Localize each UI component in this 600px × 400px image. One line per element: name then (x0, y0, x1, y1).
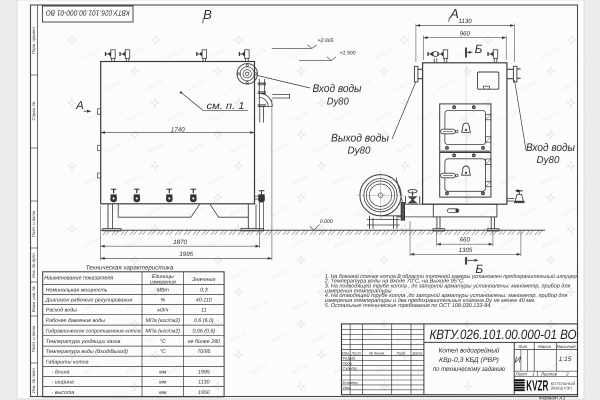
svg-text:960: 960 (460, 30, 471, 37)
svg-text:Дата: Дата (412, 352, 423, 356)
svg-text:Dy80: Dy80 (348, 146, 371, 157)
svg-text:Б: Б (475, 42, 483, 56)
svg-text:Котел водогрейный: Котел водогрейный (439, 346, 500, 354)
svg-text:не более 280: не более 280 (188, 339, 220, 345)
svg-text:КВр-0,3 КБД (РВР): КВр-0,3 КБД (РВР) (439, 357, 499, 364)
svg-text:660: 660 (460, 237, 471, 244)
svg-text:Инв. № подл.: Инв. № подл. (31, 367, 36, 393)
svg-text:1:15: 1:15 (559, 356, 572, 363)
svg-text:11: 11 (201, 308, 207, 314)
svg-text:измерения: измерения (150, 279, 176, 285)
svg-text:0,3: 0,3 (200, 287, 207, 293)
svg-text:Разраб.: Разраб. (343, 357, 356, 361)
svg-text:см. п. 1: см. п. 1 (207, 101, 245, 112)
svg-text:+1.900: +1.900 (340, 51, 356, 57)
svg-text:1740: 1740 (171, 126, 185, 133)
svg-text:Наименование показателя: Наименование показателя (44, 276, 113, 282)
svg-text:Выход воды: Выход воды (331, 133, 389, 145)
svg-text:Лист: Лист (351, 352, 362, 356)
svg-text:А: А (75, 100, 84, 112)
svg-text:40-110: 40-110 (196, 298, 212, 304)
svg-text:МВт: МВт (157, 287, 170, 293)
svg-text:0.000: 0.000 (320, 219, 333, 225)
svg-text:1995: 1995 (179, 251, 193, 258)
svg-text:по техническому заданию: по техническому заданию (433, 366, 505, 373)
svg-text:0,06 (0,6): 0,06 (0,6) (193, 328, 216, 334)
svg-text:- высота: - высота (52, 390, 75, 396)
svg-text:70/95: 70/95 (197, 349, 210, 355)
svg-text:м3/ч: м3/ч (157, 308, 168, 314)
svg-text:Расход воды: Расход воды (46, 308, 77, 314)
svg-text:- длина: - длина (52, 370, 70, 376)
svg-text:Справ. №: Справ. № (31, 101, 36, 120)
svg-text:- ширина: - ширина (52, 380, 74, 386)
svg-text:А: А (449, 6, 459, 21)
svg-text:°С: °С (160, 349, 166, 355)
svg-text:Dy80: Dy80 (537, 155, 560, 166)
svg-text:Значение: Значение (192, 277, 216, 283)
svg-text:KVZR: KVZR (526, 379, 548, 395)
svg-text:Инв. № дубл.: Инв. № дубл. (31, 252, 36, 278)
svg-text:2: 2 (565, 372, 569, 377)
svg-text:Габариты котла: Габариты котла (46, 359, 89, 365)
svg-text:Диапазон рабочего регулировани: Диапазон рабочего регулирования (45, 298, 133, 304)
svg-text:Лист: Лист (515, 372, 528, 377)
svg-text:Dy80: Dy80 (327, 97, 349, 108)
svg-text:№ докум.: № докум. (369, 352, 385, 356)
svg-text:1995: 1995 (198, 370, 210, 376)
svg-text:В: В (203, 7, 212, 22)
svg-text:°С: °С (160, 339, 166, 345)
svg-text:КВТУ.026.101.00.000-01 ВО: КВТУ.026.101.00.000-01 ВО (430, 327, 577, 342)
svg-text:МПа (кгс/см2): МПа (кгс/см2) (145, 328, 180, 334)
svg-text:Утв.: Утв. (343, 386, 351, 390)
svg-text:1950: 1950 (198, 390, 210, 396)
svg-text:ЗАВОД РЭП: ЗАВОД РЭП (551, 385, 572, 390)
svg-text:мм: мм (159, 380, 167, 386)
svg-text:Н.контр.: Н.контр. (343, 381, 359, 385)
svg-text:Лит: Лит (517, 344, 527, 349)
svg-text:Перв. примен.: Перв. примен. (31, 26, 36, 54)
svg-text:Подп.: Подп. (396, 352, 406, 356)
svg-text:Гидравлическое сопротивление к: Гидравлическое сопротивление котла (46, 328, 141, 334)
svg-text:Т.контр.: Т.контр. (343, 366, 358, 370)
svg-text:0,6 (6,0): 0,6 (6,0) (194, 318, 214, 324)
svg-text:Масса: Масса (538, 344, 551, 349)
svg-text:5. Остальные технические треб: 5. Остальные технические требования по О… (325, 302, 492, 309)
svg-text:И: И (515, 354, 522, 364)
svg-text:Вход воды: Вход воды (313, 83, 362, 95)
svg-text:Пров.: Пров. (343, 362, 353, 366)
svg-text:Номинальная мощность: Номинальная мощность (46, 287, 108, 293)
svg-text:Изм.: Изм. (342, 352, 350, 356)
svg-text:Температура уходящих газов: Температура уходящих газов (46, 339, 121, 345)
svg-text:Вход воды: Вход воды (526, 142, 575, 154)
svg-text:мм: мм (159, 370, 167, 376)
svg-text:1130: 1130 (458, 18, 472, 25)
svg-text:Температура воды (Вход/Выход): Температура воды (Вход/Выход) (46, 349, 128, 355)
svg-text:Листов: Листов (540, 372, 558, 377)
svg-text:КВТУ.026.101.00.000-01 ВО: КВТУ.026.101.00.000-01 ВО (45, 8, 129, 17)
svg-text:1870: 1870 (173, 239, 187, 246)
svg-text:Техническая характеристика: Техническая характеристика (86, 264, 174, 271)
svg-text:%: % (160, 298, 165, 304)
svg-text:Взам. инв. №: Взам. инв. № (31, 286, 36, 312)
svg-text:Рабочее давление воды: Рабочее давление воды (46, 318, 105, 324)
svg-text:Подп. и дата: Подп. и дата (31, 210, 36, 237)
svg-text:1305: 1305 (459, 247, 473, 254)
svg-text:Подп. и дата: Подп. и дата (31, 325, 36, 352)
svg-text:мм: мм (159, 390, 167, 396)
svg-text:1130: 1130 (198, 380, 209, 386)
svg-text:+2.065: +2.065 (318, 38, 334, 44)
svg-text:МПа (кгс/см2): МПа (кгс/см2) (145, 318, 180, 324)
svg-text:Формат А3: Формат А3 (539, 395, 566, 400)
svg-text:Масштаб: Масштаб (557, 344, 577, 349)
